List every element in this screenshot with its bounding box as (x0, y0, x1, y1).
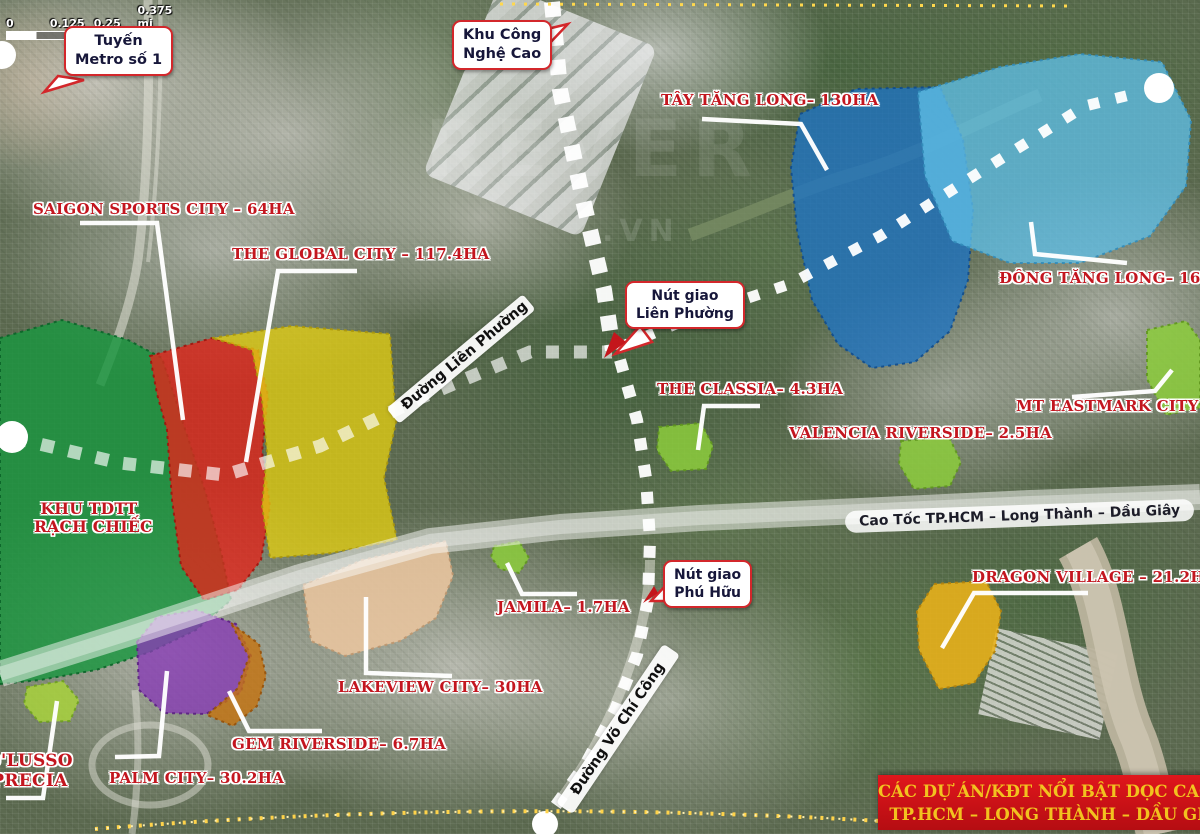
callout-metro-line-1: Tuyến Metro số 1 (64, 26, 173, 76)
gold-sparkle-bottom-glow (95, 811, 880, 829)
label-dlusso-precia: D'LUSSO PRECIA (0, 752, 73, 791)
region-the-classia (657, 423, 713, 471)
interchange-loop (92, 725, 208, 805)
project-map: REVER .VN 0 0.125 0.25 0.375 mi Tuyến Me… (0, 0, 1200, 834)
label-mt-eastmark-city: MT EASTMARK CITY ~20HA (1016, 398, 1200, 415)
label-palm-city: PALM CITY– 30.2HA (109, 770, 284, 787)
label-the-global-city: THE GLOBAL CITY – 117.4HA (232, 246, 490, 263)
callout-lien-phuong-text2: Liên Phường (636, 305, 734, 323)
region-dlusso-precia (24, 681, 79, 722)
gold-sparkle-top (500, 4, 1075, 6)
gold-sparkle-bottom (95, 811, 880, 829)
label-valencia-riverside: VALENCIA RIVERSIDE– 2.5HA (789, 425, 1052, 442)
label-tay-tang-long: TÂY TĂNG LONG– 130HA (661, 92, 879, 109)
label-dlusso-line2: PRECIA (0, 772, 73, 792)
label-tdtt-line1: KHU TDTT (34, 500, 144, 518)
callout-lien-phuong-text1: Nút giao (636, 287, 734, 305)
title-banner-line2: TP.HCM – LONG THÀNH – DẦU GIÂY (878, 803, 1200, 826)
callout-hi-tech-park: Khu Công Nghệ Cao (452, 20, 552, 70)
label-dragon-village: DRAGON VILLAGE – 21.2HA (972, 569, 1200, 586)
title-banner-line1: CÁC DỰ ÁN/KĐT NỔI BẬT DỌC CAO TỐC (878, 780, 1200, 803)
label-tdtt-line2: RẠCH CHIẾC (34, 518, 144, 536)
local-road (132, 690, 138, 834)
label-khu-tdtt-rach-chiec: KHU TDTT RẠCH CHIẾC (34, 500, 144, 536)
region-valencia-riverside (899, 437, 961, 489)
callout-phu-huu-text2: Phú Hữu (674, 584, 741, 602)
line-endpoint-topleft (0, 41, 16, 69)
callout-tail-metro (44, 76, 84, 92)
scale-tick-0: 0 (6, 17, 46, 30)
callout-metro-line-1-text1: Tuyến (75, 32, 162, 51)
callout-phu-huu-text1: Nút giao (674, 566, 741, 584)
region-dragon-village (917, 581, 1001, 689)
watermark: REVER (425, 105, 762, 195)
title-banner: CÁC DỰ ÁN/KĐT NỔI BẬT DỌC CAO TỐC TP.HCM… (878, 775, 1200, 830)
label-the-classia: THE CLASSIA– 4.3HA (657, 381, 843, 398)
label-gem-riverside: GEM RIVERSIDE– 6.7HA (232, 736, 446, 753)
callout-hi-tech-text2: Nghệ Cao (463, 45, 541, 64)
label-dlusso-line1: D'LUSSO (0, 752, 73, 772)
watermark-suffix: .VN (602, 214, 680, 249)
callout-lien-phuong-junction: Nút giao Liên Phường (625, 281, 745, 329)
label-saigon-sports-city: SAIGON SPORTS CITY – 64HA (33, 201, 295, 218)
callout-phu-huu-junction: Nút giao Phú Hữu (663, 560, 752, 608)
line-endpoint-south (532, 811, 558, 834)
label-lakeview-city: LAKEVIEW CITY– 30HA (338, 679, 543, 696)
callout-hi-tech-text1: Khu Công (463, 26, 541, 45)
callout-metro-line-1-text2: Metro số 1 (75, 51, 162, 70)
label-jamila: JAMILA– 1.7HA (497, 599, 630, 616)
line-endpoint-northeast (1144, 73, 1174, 103)
label-dong-tang-long: ĐÔNG TĂNG LONG– 160HA (999, 270, 1200, 287)
